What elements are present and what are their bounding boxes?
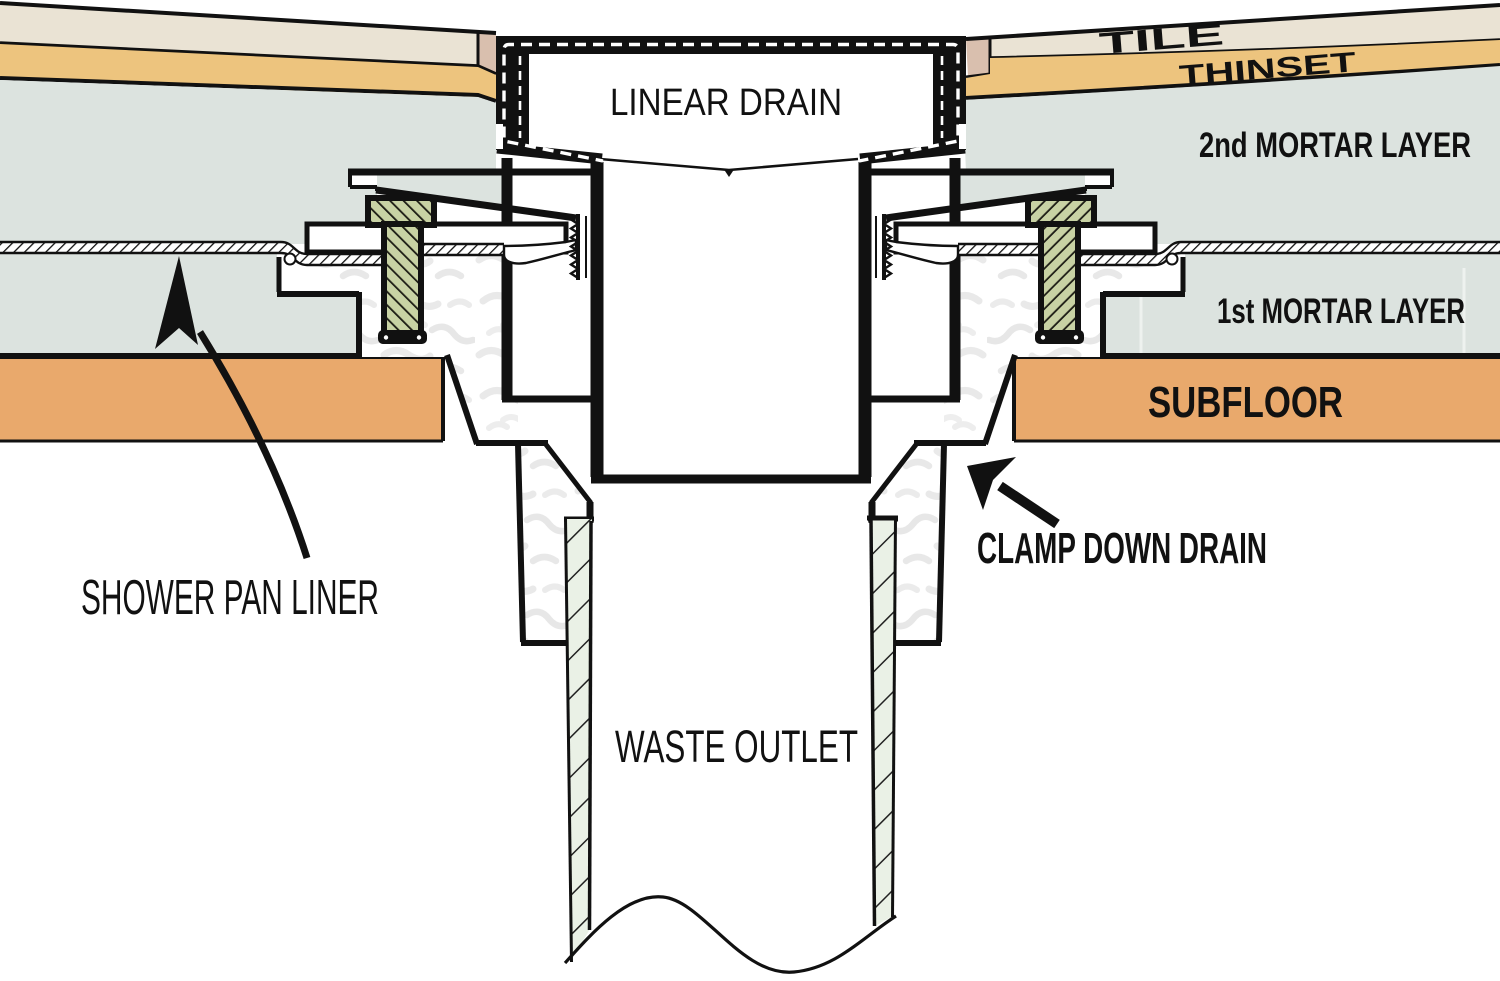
svg-text:LINEAR DRAIN: LINEAR DRAIN [610, 82, 842, 124]
svg-text:2nd MORTAR LAYER: 2nd MORTAR LAYER [1199, 126, 1471, 165]
svg-text:SHOWER PAN LINER: SHOWER PAN LINER [81, 571, 379, 625]
svg-text:CLAMP DOWN DRAIN: CLAMP DOWN DRAIN [977, 524, 1267, 573]
svg-text:SUBFLOOR: SUBFLOOR [1148, 378, 1343, 427]
svg-text:WASTE OUTLET: WASTE OUTLET [615, 721, 858, 772]
svg-text:1st MORTAR LAYER: 1st MORTAR LAYER [1217, 292, 1465, 331]
